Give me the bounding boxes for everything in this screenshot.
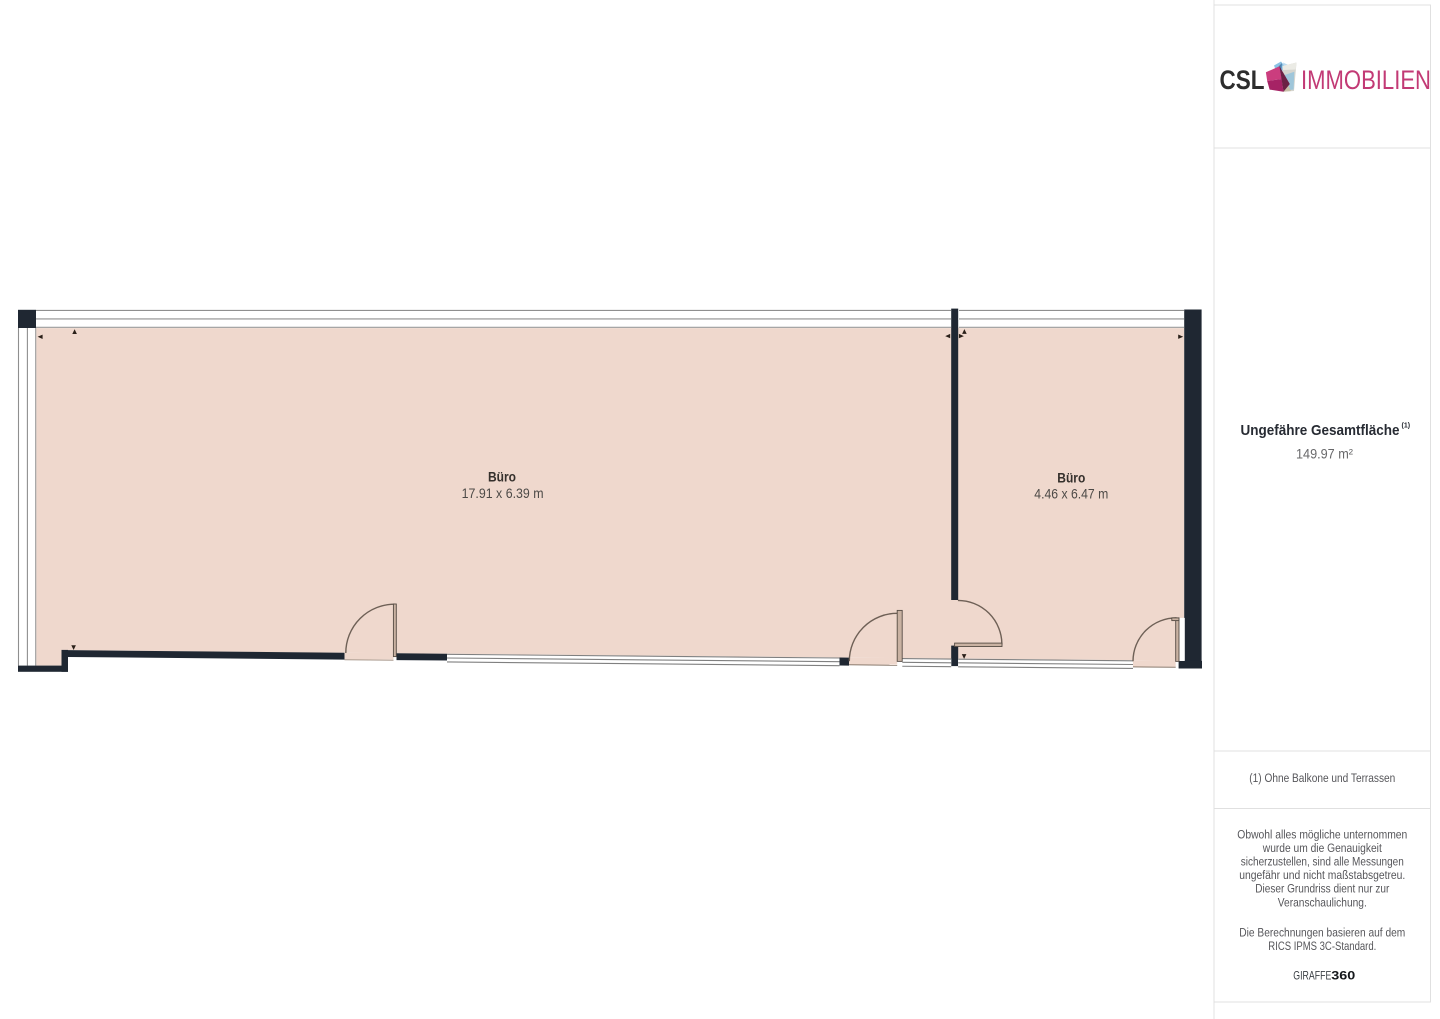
svg-text:17.91 x 6.39 m: 17.91 x 6.39 m bbox=[462, 486, 544, 501]
svg-text:Dieser Grundriss dient nur zur: Dieser Grundriss dient nur zur bbox=[1255, 882, 1389, 896]
svg-text:360: 360 bbox=[1331, 969, 1355, 983]
svg-text:149.97 m²: 149.97 m² bbox=[1296, 446, 1353, 462]
svg-text:Büro: Büro bbox=[1057, 469, 1085, 485]
svg-text:GIRAFFE: GIRAFFE bbox=[1293, 969, 1331, 983]
svg-text:(1) Ohne Balkone und Terrassen: (1) Ohne Balkone und Terrassen bbox=[1249, 771, 1395, 785]
svg-text:Obwohl alles mögliche unternom: Obwohl alles mögliche unternommen bbox=[1237, 827, 1407, 841]
svg-text:ungefähr und nicht maßstabsget: ungefähr und nicht maßstabsgetreu. bbox=[1239, 868, 1405, 882]
svg-text:CSL: CSL bbox=[1220, 65, 1265, 95]
svg-text:IMMOBILIEN: IMMOBILIEN bbox=[1301, 65, 1431, 95]
svg-text:RICS IPMS 3C-Standard.: RICS IPMS 3C-Standard. bbox=[1268, 939, 1376, 953]
svg-text:(1): (1) bbox=[1402, 423, 1411, 430]
svg-text:Die Berechnungen basieren auf: Die Berechnungen basieren auf dem bbox=[1239, 926, 1405, 940]
svg-text:sicherzustellen, sind alle Mes: sicherzustellen, sind alle Messungen bbox=[1241, 855, 1404, 869]
svg-text:Veranschaulichung.: Veranschaulichung. bbox=[1278, 895, 1367, 909]
svg-text:Ungefähre Gesamtfläche: Ungefähre Gesamtfläche bbox=[1241, 423, 1400, 439]
svg-text:wurde um die Genauigkeit: wurde um die Genauigkeit bbox=[1262, 841, 1382, 855]
svg-text:Büro: Büro bbox=[488, 469, 516, 485]
svg-text:4.46 x 6.47 m: 4.46 x 6.47 m bbox=[1034, 487, 1108, 502]
